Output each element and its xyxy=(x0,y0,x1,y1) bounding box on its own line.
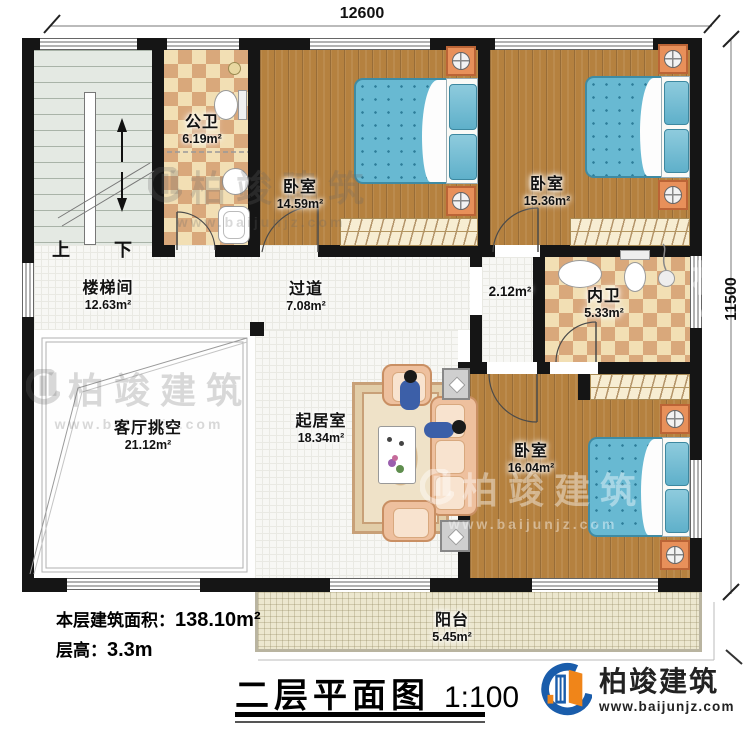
brand-url: www.baijunjz.com xyxy=(599,699,735,714)
watermark: 柏竣建筑 www.baijunjz.com xyxy=(692,250,750,320)
floor-height-note: 层高：3.3m xyxy=(56,636,153,662)
pillow xyxy=(449,134,477,180)
drawing-title: 二层平面图1:100 xyxy=(235,668,519,717)
table-dot xyxy=(387,437,392,442)
nightstand xyxy=(446,186,476,216)
person-figure xyxy=(424,414,466,442)
stairs-down-label: 下 xyxy=(114,236,132,262)
room-label-bedroom2: 卧室15.36m² xyxy=(497,176,597,209)
sink xyxy=(558,260,602,288)
nightstand xyxy=(660,540,690,570)
wall xyxy=(470,362,487,374)
window xyxy=(690,460,702,538)
watermark-brand: 柏竣建筑 xyxy=(68,362,252,414)
brand-logo: 柏竣建筑 www.baijunjz.com xyxy=(534,662,735,720)
wall xyxy=(478,50,490,257)
vestibule-floor xyxy=(482,257,533,362)
window xyxy=(40,38,137,50)
wall xyxy=(598,362,690,374)
watermark-logo-icon xyxy=(26,369,60,407)
floor-area-note: 本层建筑面积：138.10m² xyxy=(56,606,261,632)
window xyxy=(22,263,34,317)
table-dot xyxy=(399,441,404,446)
room-label-bedroom3: 卧室16.04m² xyxy=(481,443,581,476)
wall-pier xyxy=(578,374,590,400)
nightstand xyxy=(660,404,690,434)
floor-plan: 柏竣建筑 www.baijunjz.com 柏竣建筑 www.baijunjz.… xyxy=(0,0,750,735)
watermark-logo-icon xyxy=(148,167,182,205)
wall xyxy=(533,257,545,362)
wardrobe xyxy=(570,218,690,246)
wall xyxy=(164,245,175,257)
wall xyxy=(470,315,482,362)
dimension-right: 11500 xyxy=(723,271,741,327)
wall xyxy=(537,362,550,374)
wardrobe xyxy=(590,374,690,400)
room-label-hallway: 过道7.08m² xyxy=(256,281,356,314)
wall xyxy=(215,245,260,257)
room-label-void: 客厅挑空21.12m² xyxy=(88,420,208,453)
watermark-url: www.baijunjz.com xyxy=(420,516,646,532)
window xyxy=(67,578,200,592)
wall xyxy=(540,245,690,257)
nightstand xyxy=(446,46,476,76)
room-label-public-bath: 公卫6.19m² xyxy=(162,114,242,147)
window xyxy=(330,578,430,592)
room-label-balcony: 阳台5.45m² xyxy=(402,612,502,645)
pillow xyxy=(665,489,689,533)
watermark-url: www.baijunjz.com xyxy=(692,304,750,320)
coffee-table xyxy=(378,426,416,484)
wall-pier xyxy=(250,322,264,336)
dimension-top: 12600 xyxy=(330,5,394,23)
watermark-logo-icon xyxy=(420,469,454,507)
bed xyxy=(585,76,690,178)
watermark-url: www.baijunjz.com xyxy=(148,214,374,230)
wall xyxy=(490,245,495,257)
room-label-bedroom1: 卧室14.59m² xyxy=(250,179,350,212)
title-underline xyxy=(235,712,485,717)
side-table xyxy=(442,368,470,400)
room-label-family-room: 起居室18.34m² xyxy=(271,413,371,446)
room-label-stairwell: 楼梯间12.63m² xyxy=(58,280,158,313)
stair-rail xyxy=(84,92,96,245)
wall-lamp-icon xyxy=(228,62,241,75)
title-scale: 1:100 xyxy=(444,681,519,714)
flower-icon xyxy=(392,455,398,461)
stairs-up-label: 上 xyxy=(52,236,70,262)
room-label-vestibule: 2.12m² xyxy=(468,284,552,300)
watermark-brand: 柏竣建筑 xyxy=(692,250,750,302)
pillow xyxy=(665,442,689,486)
brand-name: 柏竣建筑 xyxy=(599,668,735,696)
nightstand xyxy=(658,44,688,74)
nightstand xyxy=(658,180,688,210)
pillow xyxy=(664,81,689,125)
person-figure xyxy=(396,370,424,412)
toilet-tank xyxy=(620,250,650,260)
bed-sheet xyxy=(640,78,661,176)
title-text: 二层平面图 xyxy=(235,677,430,715)
shower-head-icon xyxy=(658,270,675,287)
pillow xyxy=(449,84,477,130)
room-label-ensuite-bath: 内卫5.33m² xyxy=(564,288,644,321)
window xyxy=(167,38,239,50)
window xyxy=(310,38,430,50)
flower-icon xyxy=(396,465,404,473)
window xyxy=(495,38,653,50)
window xyxy=(532,578,658,592)
wall xyxy=(470,257,482,267)
title-underline-thin xyxy=(235,721,485,723)
pillow xyxy=(664,129,689,173)
brand-logo-icon xyxy=(534,662,592,720)
wall xyxy=(318,245,478,257)
